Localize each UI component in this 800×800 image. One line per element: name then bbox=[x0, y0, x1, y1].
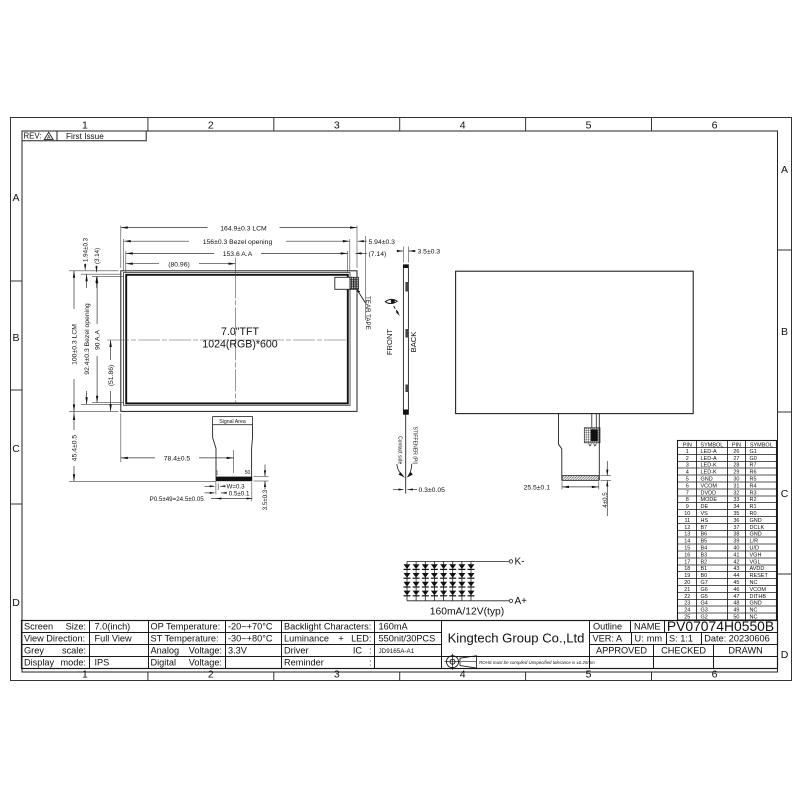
svg-text:550nit/30PCS: 550nit/30PCS bbox=[379, 633, 436, 643]
svg-text:Contact side: Contact side bbox=[396, 436, 402, 464]
svg-text:16: 16 bbox=[684, 552, 690, 558]
svg-text:160mA/12V(typ): 160mA/12V(typ) bbox=[430, 607, 504, 618]
svg-text:21: 21 bbox=[684, 587, 690, 593]
svg-text:C: C bbox=[12, 443, 20, 455]
svg-text:GND: GND bbox=[750, 518, 762, 524]
svg-text:VER: A: VER: A bbox=[593, 633, 623, 643]
svg-text:32: 32 bbox=[733, 490, 739, 496]
svg-text::: : bbox=[369, 658, 372, 668]
svg-text:1: 1 bbox=[82, 669, 88, 681]
svg-text:5: 5 bbox=[586, 120, 592, 132]
svg-text:LED:: LED: bbox=[351, 633, 371, 643]
svg-text:2: 2 bbox=[208, 669, 214, 681]
svg-text:4: 4 bbox=[460, 669, 466, 681]
svg-text:R6: R6 bbox=[750, 470, 757, 476]
svg-text:49: 49 bbox=[733, 608, 739, 614]
svg-text:(7.14): (7.14) bbox=[369, 251, 387, 258]
svg-text:13: 13 bbox=[684, 532, 690, 538]
svg-text:PIN: PIN bbox=[732, 443, 741, 449]
svg-text:DITHB: DITHB bbox=[750, 594, 767, 600]
svg-text:BACK: BACK bbox=[409, 332, 418, 353]
svg-text:G5: G5 bbox=[701, 594, 708, 600]
svg-text:R2: R2 bbox=[750, 497, 757, 503]
svg-text:U/D: U/D bbox=[750, 546, 760, 552]
svg-text:1: 1 bbox=[216, 470, 219, 476]
svg-text:45.4±0.5: 45.4±0.5 bbox=[71, 435, 78, 462]
svg-text:ROHS must be complied Unspecif: ROHS must be complied Unspecified tolera… bbox=[479, 660, 595, 665]
svg-text:11: 11 bbox=[684, 518, 690, 524]
svg-text:Analog: Analog bbox=[151, 645, 180, 655]
svg-text:B6: B6 bbox=[701, 532, 708, 538]
svg-text:JD9165A-A1: JD9165A-A1 bbox=[379, 648, 415, 655]
svg-text:39: 39 bbox=[733, 539, 739, 545]
svg-text:0.3±0.05: 0.3±0.05 bbox=[419, 487, 446, 494]
svg-text:90 A.A: 90 A.A bbox=[94, 330, 101, 350]
svg-text:DE: DE bbox=[701, 504, 709, 510]
svg-text:A: A bbox=[12, 192, 19, 204]
svg-text:IC: IC bbox=[353, 645, 363, 655]
svg-text:ST Temperature:: ST Temperature: bbox=[151, 633, 219, 643]
svg-text:STIFFENER (PI): STIFFENER (PI) bbox=[412, 427, 418, 465]
svg-text:28: 28 bbox=[733, 463, 739, 469]
svg-text:45: 45 bbox=[733, 580, 739, 586]
svg-text:RESET: RESET bbox=[750, 573, 769, 579]
svg-text:31: 31 bbox=[733, 483, 739, 489]
svg-text:VCOM: VCOM bbox=[701, 483, 718, 489]
svg-text:23: 23 bbox=[684, 601, 690, 607]
svg-text:47: 47 bbox=[733, 594, 739, 600]
svg-text:G1: G1 bbox=[750, 449, 757, 455]
svg-text:7: 7 bbox=[686, 490, 689, 496]
svg-text:LED-K: LED-K bbox=[701, 470, 718, 476]
svg-text:1.94±0.3: 1.94±0.3 bbox=[83, 237, 90, 262]
svg-text:G7: G7 bbox=[701, 580, 708, 586]
svg-text:6: 6 bbox=[712, 120, 718, 132]
svg-text:3: 3 bbox=[334, 120, 340, 132]
svg-text:MODE: MODE bbox=[701, 497, 718, 503]
svg-text:35: 35 bbox=[733, 511, 739, 517]
svg-text:R7: R7 bbox=[750, 463, 757, 469]
svg-text:37: 37 bbox=[733, 525, 739, 531]
svg-text:50: 50 bbox=[245, 470, 251, 476]
svg-text:20: 20 bbox=[684, 580, 690, 586]
svg-text:10: 10 bbox=[684, 511, 690, 517]
svg-text:GND: GND bbox=[701, 477, 713, 483]
svg-text:Kingtech Group Co.,Ltd: Kingtech Group Co.,Ltd bbox=[448, 631, 585, 646]
svg-text:SYMBOL: SYMBOL bbox=[750, 443, 773, 449]
svg-text:VGH: VGH bbox=[750, 552, 762, 558]
svg-text:B: B bbox=[12, 332, 19, 344]
svg-text:3: 3 bbox=[334, 669, 340, 681]
svg-text:U:: U: bbox=[635, 633, 644, 643]
svg-text:LED-K: LED-K bbox=[701, 463, 718, 469]
svg-text:Voltage:: Voltage: bbox=[189, 645, 222, 655]
svg-text:-20~+70°C: -20~+70°C bbox=[228, 621, 273, 631]
svg-text:4: 4 bbox=[460, 120, 466, 132]
svg-text:Backlight Characters:: Backlight Characters: bbox=[284, 621, 371, 631]
svg-text:B: B bbox=[781, 326, 788, 338]
svg-text:41: 41 bbox=[733, 552, 739, 558]
svg-text:R4: R4 bbox=[750, 483, 757, 489]
svg-text:Display: Display bbox=[24, 658, 55, 668]
svg-text::: : bbox=[369, 645, 372, 655]
svg-text:Outline: Outline bbox=[593, 621, 622, 631]
svg-text:Luminance: Luminance bbox=[284, 633, 329, 643]
svg-text:B2: B2 bbox=[701, 559, 708, 565]
svg-text:mm: mm bbox=[647, 633, 663, 643]
svg-text:First Issue: First Issue bbox=[66, 132, 104, 141]
svg-text:IPS: IPS bbox=[95, 658, 110, 668]
svg-text:Size:: Size: bbox=[66, 621, 86, 631]
svg-text:25.5±0.1: 25.5±0.1 bbox=[524, 484, 551, 491]
svg-text:D: D bbox=[781, 649, 789, 661]
svg-text:34: 34 bbox=[733, 504, 739, 510]
svg-text:78.4±0.5: 78.4±0.5 bbox=[164, 456, 191, 463]
svg-text:14: 14 bbox=[684, 539, 690, 545]
svg-text:27: 27 bbox=[733, 456, 739, 462]
svg-text:R0: R0 bbox=[750, 511, 757, 517]
svg-text:5: 5 bbox=[686, 477, 689, 483]
svg-text:38: 38 bbox=[733, 532, 739, 538]
svg-text:4±0.5: 4±0.5 bbox=[602, 492, 609, 508]
svg-text:40: 40 bbox=[733, 546, 739, 552]
svg-text:View Direction:: View Direction: bbox=[24, 633, 85, 643]
svg-text:REV:: REV: bbox=[24, 132, 42, 141]
svg-text:R1: R1 bbox=[750, 504, 757, 510]
svg-text:164.9±0.3 LCM: 164.9±0.3 LCM bbox=[220, 225, 267, 232]
svg-text:G6: G6 bbox=[701, 587, 708, 593]
svg-text:4: 4 bbox=[686, 470, 689, 476]
svg-text:2: 2 bbox=[686, 456, 689, 462]
svg-text:AVDD: AVDD bbox=[750, 566, 765, 572]
svg-text:scale:: scale: bbox=[62, 645, 86, 655]
svg-text:160mA: 160mA bbox=[379, 621, 409, 631]
svg-text:22: 22 bbox=[684, 594, 690, 600]
svg-text:Screen: Screen bbox=[24, 621, 53, 631]
svg-text:A+: A+ bbox=[515, 596, 528, 607]
svg-text:B7: B7 bbox=[701, 525, 708, 531]
svg-text:GND: GND bbox=[750, 532, 762, 538]
svg-text:A: A bbox=[781, 164, 788, 176]
svg-text:42: 42 bbox=[733, 559, 739, 565]
svg-text:GND: GND bbox=[750, 601, 762, 607]
svg-text:PIN: PIN bbox=[683, 443, 692, 449]
svg-text:46: 46 bbox=[733, 587, 739, 593]
svg-text:VS: VS bbox=[701, 511, 709, 517]
svg-text:SYMBOL: SYMBOL bbox=[700, 443, 723, 449]
svg-text:C: C bbox=[781, 488, 789, 500]
svg-text:PV07074H0550B: PV07074H0550B bbox=[667, 618, 774, 634]
svg-text:B0: B0 bbox=[701, 573, 708, 579]
svg-text:DRAWN: DRAWN bbox=[728, 645, 762, 655]
svg-text:9: 9 bbox=[686, 504, 689, 510]
svg-text:NC: NC bbox=[750, 608, 758, 614]
svg-text:LED-A: LED-A bbox=[701, 456, 718, 462]
svg-text:A: A bbox=[47, 135, 51, 141]
svg-text:NAME: NAME bbox=[634, 621, 661, 631]
svg-text:R3: R3 bbox=[750, 490, 757, 496]
svg-text:3.3V: 3.3V bbox=[228, 645, 248, 655]
svg-text:Date: 20230606: Date: 20230606 bbox=[704, 633, 769, 643]
svg-text:5.94±0.3: 5.94±0.3 bbox=[369, 239, 396, 246]
svg-text:Digital: Digital bbox=[151, 658, 177, 668]
svg-text:APPROVED: APPROVED bbox=[596, 645, 647, 655]
svg-text:VGL: VGL bbox=[750, 559, 761, 565]
svg-text:Full View: Full View bbox=[95, 633, 132, 643]
svg-text:L/R: L/R bbox=[750, 539, 759, 545]
svg-text:1024(RGB)*600: 1024(RGB)*600 bbox=[202, 338, 277, 350]
svg-text:43: 43 bbox=[733, 566, 739, 572]
svg-text:B3: B3 bbox=[701, 552, 708, 558]
svg-text:OP Temperature:: OP Temperature: bbox=[151, 621, 221, 631]
svg-text:G0: G0 bbox=[750, 456, 757, 462]
svg-text:92.4±0.3 Bezel opening: 92.4±0.3 Bezel opening bbox=[84, 303, 91, 375]
svg-text:(3.14): (3.14) bbox=[94, 248, 101, 264]
svg-text:R5: R5 bbox=[750, 477, 757, 483]
svg-text:(51.86): (51.86) bbox=[108, 365, 115, 387]
svg-text:15: 15 bbox=[684, 546, 690, 552]
svg-text:1: 1 bbox=[686, 449, 689, 455]
svg-text:S: 1:1: S: 1:1 bbox=[669, 633, 693, 643]
svg-text:1: 1 bbox=[82, 120, 88, 132]
svg-text:3: 3 bbox=[686, 463, 689, 469]
svg-text:D: D bbox=[12, 597, 20, 609]
svg-text:NC: NC bbox=[750, 580, 758, 586]
svg-text:29: 29 bbox=[733, 470, 739, 476]
svg-text:-30~+80°C: -30~+80°C bbox=[228, 633, 273, 643]
svg-text:0.5±0.1: 0.5±0.1 bbox=[229, 490, 250, 497]
svg-text:B5: B5 bbox=[701, 539, 708, 545]
svg-text:G3: G3 bbox=[701, 608, 708, 614]
svg-text:24: 24 bbox=[684, 608, 690, 614]
svg-text:7.0"TFT: 7.0"TFT bbox=[221, 326, 259, 338]
svg-text:Signal Area: Signal Area bbox=[219, 419, 246, 425]
svg-text:P0.5±49=24.5±0.05: P0.5±49=24.5±0.05 bbox=[150, 496, 205, 503]
svg-text:12: 12 bbox=[684, 525, 690, 531]
svg-text:VCOM: VCOM bbox=[750, 587, 767, 593]
svg-text:B1: B1 bbox=[701, 566, 708, 572]
svg-text:17: 17 bbox=[684, 559, 690, 565]
svg-text:48: 48 bbox=[733, 601, 739, 607]
svg-text:Voltage:: Voltage: bbox=[189, 658, 222, 668]
svg-text:TEAR TAPE: TEAR TAPE bbox=[364, 296, 371, 330]
svg-text:K-: K- bbox=[515, 556, 525, 567]
svg-text:Reminder: Reminder bbox=[284, 658, 324, 668]
svg-text:G4: G4 bbox=[701, 601, 708, 607]
svg-text:7.0(inch): 7.0(inch) bbox=[95, 621, 131, 631]
svg-text:mode:: mode: bbox=[60, 658, 86, 668]
svg-text:B4: B4 bbox=[701, 546, 708, 552]
svg-text:19: 19 bbox=[684, 573, 690, 579]
svg-text:DVDD: DVDD bbox=[701, 490, 717, 496]
svg-text:LED-A: LED-A bbox=[701, 449, 718, 455]
svg-text:44: 44 bbox=[733, 573, 739, 579]
svg-text:100±0.3 LCM: 100±0.3 LCM bbox=[71, 324, 78, 365]
svg-text:Grey: Grey bbox=[24, 645, 44, 655]
svg-text:(80.96): (80.96) bbox=[168, 261, 190, 268]
svg-text:2: 2 bbox=[208, 120, 214, 132]
svg-text:153.6 A.A: 153.6 A.A bbox=[223, 251, 253, 258]
svg-text:Driver: Driver bbox=[284, 645, 309, 655]
svg-text:156±0.3 Bezel opening: 156±0.3 Bezel opening bbox=[203, 239, 273, 246]
svg-text:3.5±0.3: 3.5±0.3 bbox=[262, 489, 269, 510]
svg-text:3.5±0.3: 3.5±0.3 bbox=[418, 249, 441, 256]
svg-text:5: 5 bbox=[586, 669, 592, 681]
svg-text:+: + bbox=[338, 633, 343, 643]
svg-text:HS: HS bbox=[701, 518, 709, 524]
svg-text:6: 6 bbox=[686, 483, 689, 489]
svg-text:CHECKED: CHECKED bbox=[661, 645, 706, 655]
svg-text:36: 36 bbox=[733, 518, 739, 524]
svg-text:18: 18 bbox=[684, 566, 690, 572]
svg-text:26: 26 bbox=[733, 449, 739, 455]
svg-text:FRONT: FRONT bbox=[385, 329, 394, 356]
svg-text:33: 33 bbox=[733, 497, 739, 503]
svg-text:6: 6 bbox=[712, 669, 718, 681]
svg-text:DCLK: DCLK bbox=[750, 525, 765, 531]
svg-text:30: 30 bbox=[733, 477, 739, 483]
svg-text:8: 8 bbox=[686, 497, 689, 503]
